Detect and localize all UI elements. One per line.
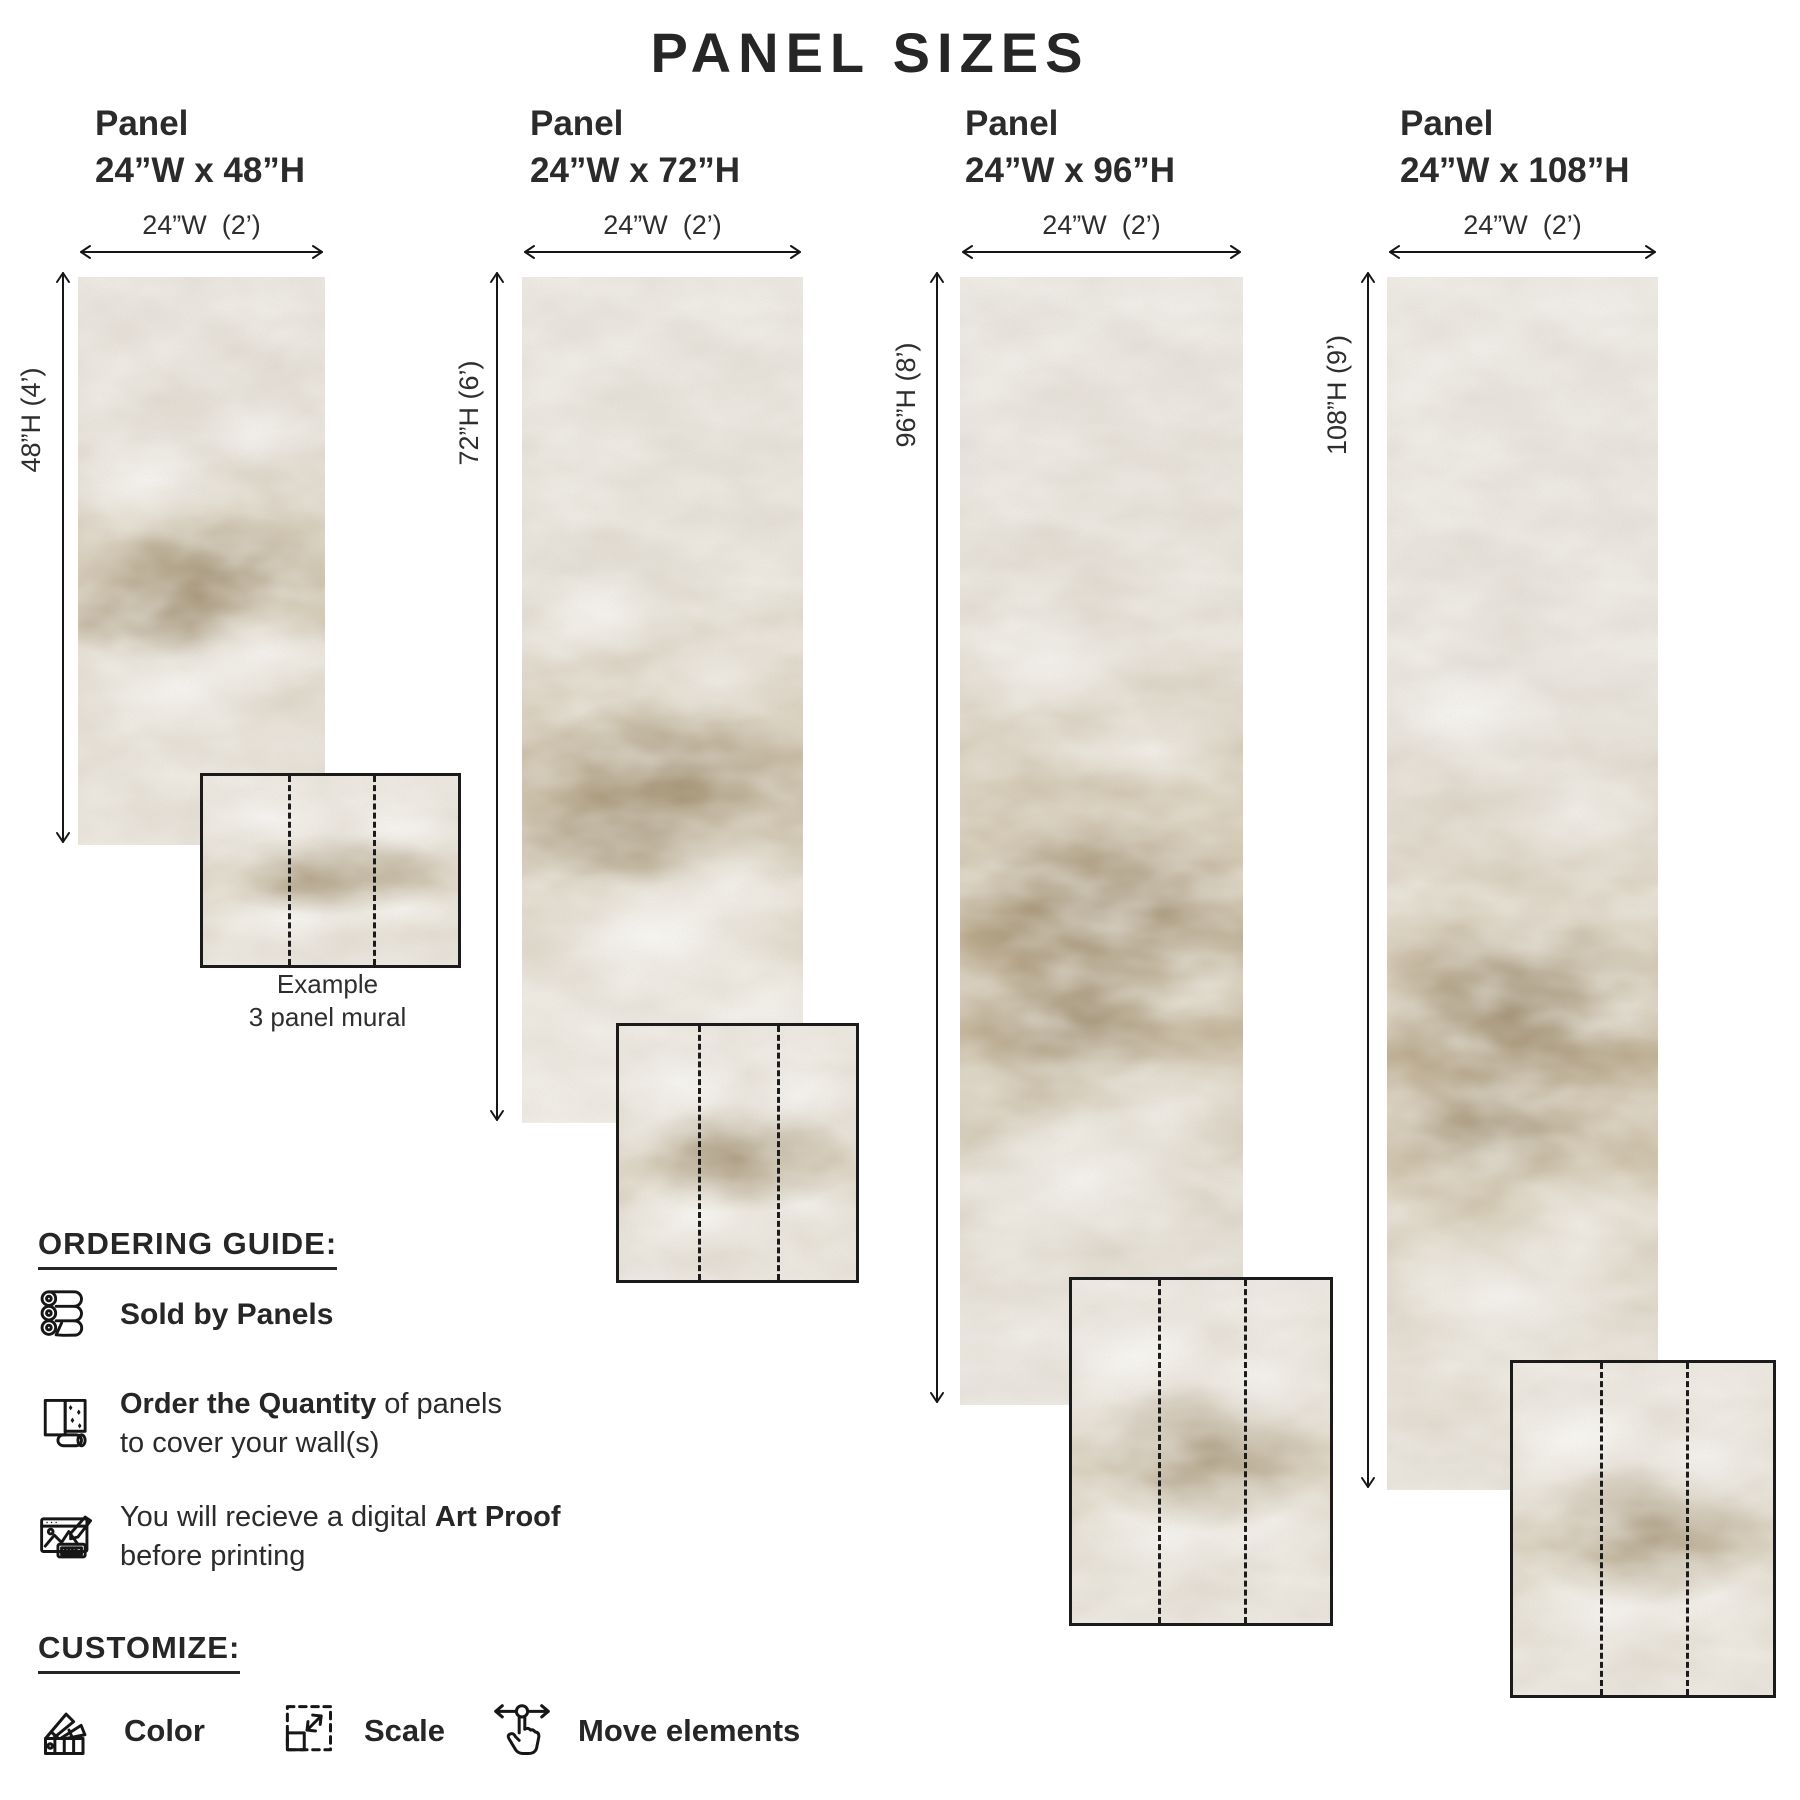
- panel4-width-arrow: [1387, 244, 1658, 260]
- customize-item-move: Move elements: [492, 1698, 800, 1764]
- panel-seam-dashed-line: [373, 776, 376, 965]
- panel1-example-mural: [200, 773, 461, 968]
- panel2-height-label: 72”H (6’): [454, 263, 486, 563]
- panel3-width-label: 24”W (2’): [960, 210, 1243, 241]
- panel2-mural-image: [522, 277, 803, 1123]
- move-elements-icon: [492, 1698, 552, 1764]
- customize-heading: CUSTOMIZE:: [38, 1630, 240, 1674]
- panel1-height-arrow: [55, 270, 71, 845]
- panel1-name: Panel: [95, 100, 305, 147]
- color-swatches-icon: [38, 1698, 98, 1764]
- customize-item-scale: Scale: [278, 1698, 445, 1764]
- panel1-height-label: 48”H (4’): [16, 270, 48, 570]
- panel2-header: Panel 24”W x 72”H: [530, 100, 740, 194]
- customize-item-color: Color: [38, 1698, 205, 1764]
- art-proof-text: You will recieve a digital Art Proof bef…: [120, 1498, 561, 1576]
- scale-icon: [278, 1698, 338, 1764]
- panel3-name: Panel: [965, 100, 1175, 147]
- panel1-mural-image: [78, 277, 325, 845]
- panel3-header: Panel 24”W x 96”H: [965, 100, 1175, 194]
- wallpaper-quantity-icon: [38, 1393, 96, 1455]
- panel2-width-arrow: [522, 244, 803, 260]
- panel4-height-arrow: [1360, 270, 1376, 1490]
- sold-by-panels-label: Sold by Panels: [120, 1295, 333, 1334]
- color-label: Color: [124, 1713, 205, 1749]
- panel1-width-arrow: [78, 244, 325, 260]
- panel2-size: 24”W x 72”H: [530, 147, 740, 194]
- example-caption-line2: 3 panel mural: [200, 1001, 455, 1034]
- order-quantity-line2: to cover your wall(s): [120, 1424, 502, 1463]
- panel2-name: Panel: [530, 100, 740, 147]
- panel-seam-dashed-line: [698, 1026, 701, 1280]
- panel4-width-label: 24”W (2’): [1387, 210, 1658, 241]
- art-proof-icon: [38, 1506, 96, 1568]
- panel3-mural-image: [960, 277, 1243, 1405]
- ordering-guide-item-sold-by-panels: Sold by Panels: [38, 1283, 333, 1345]
- panel3-height-label: 96”H (8’): [891, 245, 923, 545]
- panel3-width-arrow: [960, 244, 1243, 260]
- panel4-mural-image: [1387, 277, 1658, 1490]
- art-proof-pre: You will recieve a digital: [120, 1501, 435, 1533]
- order-quantity-bold: Order the Quantity: [120, 1388, 376, 1420]
- ordering-guide-item-art-proof: You will recieve a digital Art Proof bef…: [38, 1498, 561, 1576]
- panel2-width-label: 24”W (2’): [522, 210, 803, 241]
- panel4-size: 24”W x 108”H: [1400, 147, 1630, 194]
- page-title: PANEL SIZES: [0, 20, 1740, 85]
- panel4-example-mural: [1510, 1360, 1776, 1698]
- panel4-header: Panel 24”W x 108”H: [1400, 100, 1630, 194]
- example-caption: Example 3 panel mural: [200, 968, 455, 1034]
- panel-seam-dashed-line: [288, 776, 291, 965]
- panel4-name: Panel: [1400, 100, 1630, 147]
- panel-seam-dashed-line: [777, 1026, 780, 1280]
- order-quantity-rest: of panels: [376, 1388, 502, 1420]
- art-proof-bold: Art Proof: [435, 1501, 561, 1533]
- ordering-guide-heading: ORDERING GUIDE:: [38, 1226, 337, 1270]
- example-caption-line1: Example: [200, 968, 455, 1001]
- panel1-size: 24”W x 48”H: [95, 147, 305, 194]
- move-elements-label: Move elements: [578, 1713, 800, 1749]
- panel4-height-label: 108”H (9’): [1322, 245, 1354, 545]
- panel-rolls-icon: [38, 1283, 96, 1345]
- panel3-size: 24”W x 96”H: [965, 147, 1175, 194]
- panel3-height-arrow: [929, 270, 945, 1405]
- ordering-guide-item-order-quantity: Order the Quantity of panels to cover yo…: [38, 1385, 502, 1463]
- panel2-example-mural: [616, 1023, 859, 1283]
- panel-sizes-infographic: PANEL SIZES Panel 24”W x 48”H 24”W (2’) …: [0, 0, 1800, 1800]
- order-quantity-text: Order the Quantity of panels to cover yo…: [120, 1385, 502, 1463]
- panel-seam-dashed-line: [1600, 1363, 1603, 1695]
- scale-label: Scale: [364, 1713, 445, 1749]
- panel-seam-dashed-line: [1686, 1363, 1689, 1695]
- panel-seam-dashed-line: [1244, 1280, 1247, 1623]
- panel1-header: Panel 24”W x 48”H: [95, 100, 305, 194]
- panel2-height-arrow: [489, 270, 505, 1123]
- panel-seam-dashed-line: [1158, 1280, 1161, 1623]
- panel1-width-label: 24”W (2’): [78, 210, 325, 241]
- art-proof-line2: before printing: [120, 1537, 561, 1576]
- panel3-example-mural: [1069, 1277, 1333, 1626]
